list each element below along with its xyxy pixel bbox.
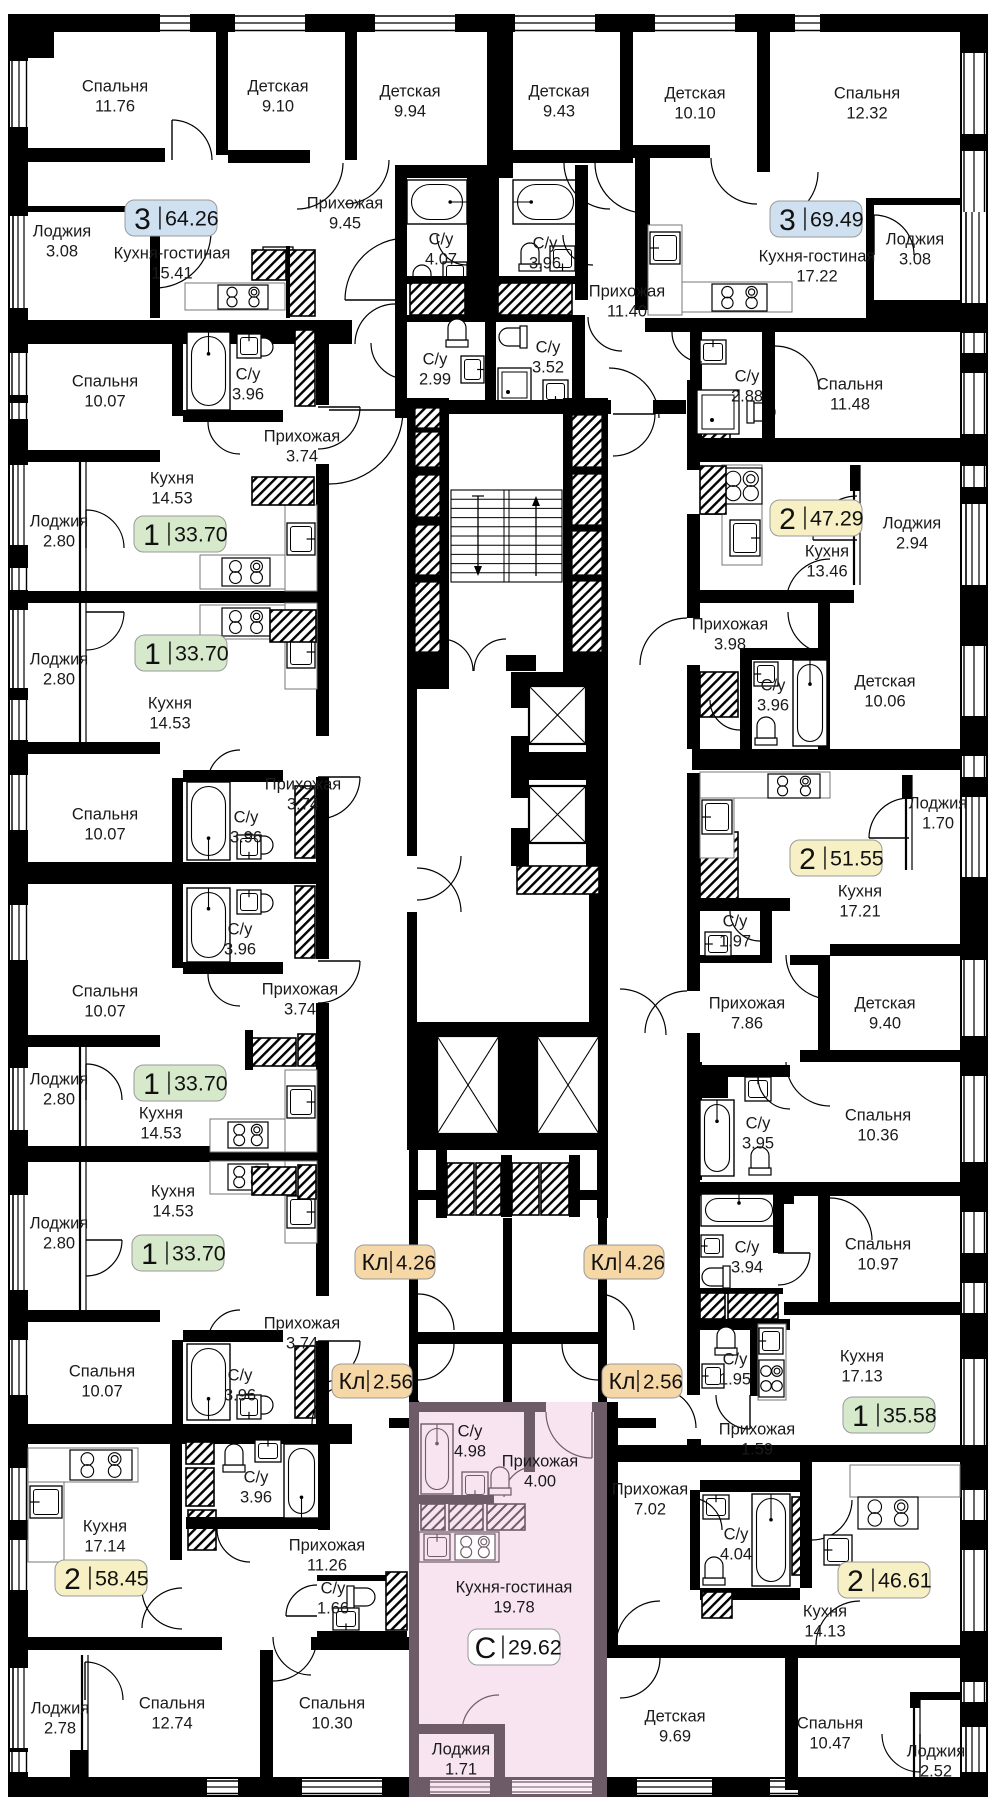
svg-text:Лоджия: Лоджия (30, 1215, 88, 1233)
svg-text:Прихожая: Прихожая (262, 981, 338, 999)
svg-text:33.70: 33.70 (174, 1072, 228, 1096)
svg-text:2.78: 2.78 (44, 1720, 76, 1738)
svg-text:1.59: 1.59 (741, 1441, 773, 1459)
svg-text:58.45: 58.45 (95, 1567, 149, 1591)
svg-text:9.40: 9.40 (869, 1015, 901, 1033)
svg-text:1.70: 1.70 (922, 815, 954, 833)
svg-text:С/у: С/у (423, 351, 449, 369)
svg-text:3: 3 (134, 203, 151, 236)
svg-text:Детская: Детская (528, 83, 589, 101)
svg-text:7.86: 7.86 (731, 1015, 763, 1033)
svg-text:1: 1 (141, 1238, 158, 1271)
svg-text:Прихожая: Прихожая (692, 616, 768, 634)
svg-text:Кухня: Кухня (838, 883, 882, 901)
svg-text:С/у: С/у (228, 1367, 254, 1385)
svg-text:47.29: 47.29 (810, 507, 864, 531)
svg-text:3.74: 3.74 (286, 1335, 318, 1353)
svg-text:10.07: 10.07 (81, 1383, 122, 1401)
svg-text:3: 3 (779, 204, 796, 237)
svg-text:2.80: 2.80 (43, 671, 75, 689)
svg-text:46.61: 46.61 (878, 1569, 932, 1593)
svg-text:11.40: 11.40 (607, 303, 647, 321)
svg-text:Кл: Кл (609, 1368, 636, 1394)
svg-text:11.26: 11.26 (307, 1557, 347, 1575)
svg-text:3.08: 3.08 (46, 243, 78, 261)
svg-text:17.14: 17.14 (84, 1538, 125, 1556)
svg-text:Детская: Детская (379, 83, 440, 101)
svg-text:Прихожая: Прихожая (265, 776, 341, 794)
svg-text:10.07: 10.07 (84, 826, 125, 844)
svg-text:12.32: 12.32 (846, 105, 887, 123)
svg-text:2.80: 2.80 (43, 1235, 75, 1253)
svg-text:Прихожая: Прихожая (264, 428, 340, 446)
svg-text:4.00: 4.00 (524, 1473, 556, 1491)
svg-text:С/у: С/у (244, 1469, 270, 1487)
svg-text:1.66: 1.66 (317, 1600, 349, 1618)
svg-text:4.07: 4.07 (425, 251, 457, 269)
svg-text:Кухня: Кухня (840, 1348, 884, 1366)
svg-text:29.62: 29.62 (508, 1636, 562, 1660)
svg-text:10.07: 10.07 (84, 1003, 125, 1021)
svg-text:3.08: 3.08 (899, 251, 931, 269)
svg-text:17.13: 17.13 (841, 1368, 882, 1386)
svg-text:Кухня: Кухня (805, 543, 849, 561)
svg-text:14.53: 14.53 (151, 490, 192, 508)
svg-text:Прихожая: Прихожая (307, 195, 383, 213)
svg-text:3.98: 3.98 (714, 636, 746, 654)
svg-text:С/у: С/у (723, 913, 749, 931)
svg-text:Спальня: Спальня (72, 373, 138, 391)
svg-text:51.55: 51.55 (830, 847, 884, 871)
svg-text:12.74: 12.74 (151, 1715, 192, 1733)
svg-text:Детская: Детская (664, 85, 725, 103)
svg-text:2.88: 2.88 (731, 388, 763, 406)
svg-text:1: 1 (144, 638, 161, 671)
svg-text:3.96: 3.96 (240, 1489, 272, 1507)
svg-text:Кухня-гостиная: Кухня-гостиная (759, 248, 876, 266)
svg-text:3.94: 3.94 (731, 1259, 763, 1277)
svg-text:3.96: 3.96 (224, 941, 256, 959)
svg-text:2.52: 2.52 (920, 1763, 952, 1781)
svg-text:3.96: 3.96 (757, 697, 789, 715)
svg-text:Прихожая: Прихожая (502, 1453, 578, 1471)
svg-text:Кухня: Кухня (150, 470, 194, 488)
svg-text:14.53: 14.53 (149, 715, 190, 733)
svg-text:Кухня: Кухня (151, 1183, 195, 1201)
svg-text:Кухня-гостиная: Кухня-гостиная (456, 1579, 573, 1597)
svg-text:2: 2 (847, 1565, 864, 1598)
svg-text:9.43: 9.43 (543, 103, 575, 121)
svg-text:Лоджия: Лоджия (30, 513, 88, 531)
svg-text:10.47: 10.47 (809, 1735, 850, 1753)
svg-text:Прихожая: Прихожая (264, 1315, 340, 1333)
svg-text:10.10: 10.10 (674, 105, 715, 123)
svg-text:Кл: Кл (362, 1249, 389, 1275)
svg-text:С/у: С/у (458, 1423, 484, 1441)
svg-text:17.22: 17.22 (796, 268, 837, 286)
svg-text:64.26: 64.26 (165, 207, 219, 231)
svg-text:Спальня: Спальня (797, 1715, 863, 1733)
svg-text:С/у: С/у (536, 339, 562, 357)
svg-text:Детская: Детская (644, 1708, 705, 1726)
svg-text:Кл: Кл (339, 1368, 366, 1394)
svg-text:Лоджия: Лоджия (30, 1071, 88, 1089)
svg-text:33.70: 33.70 (172, 1242, 226, 1266)
svg-text:11.48: 11.48 (830, 396, 870, 414)
svg-text:Спальня: Спальня (69, 1363, 135, 1381)
svg-text:Прихожая: Прихожая (589, 283, 665, 301)
svg-text:С/у: С/у (746, 1115, 772, 1133)
svg-text:4.04: 4.04 (720, 1546, 752, 1564)
svg-text:3.74: 3.74 (286, 448, 318, 466)
svg-text:Спальня: Спальня (845, 1236, 911, 1254)
svg-text:9.45: 9.45 (329, 215, 361, 233)
svg-text:Лоджия: Лоджия (432, 1741, 490, 1759)
svg-text:Спальня: Спальня (72, 806, 138, 824)
svg-text:10.36: 10.36 (857, 1127, 898, 1145)
svg-text:1.97: 1.97 (719, 933, 751, 951)
svg-text:3.96: 3.96 (529, 255, 561, 273)
svg-text:1.71: 1.71 (445, 1761, 477, 1779)
svg-text:10.97: 10.97 (857, 1256, 898, 1274)
svg-text:14.13: 14.13 (804, 1623, 845, 1641)
svg-text:9.69: 9.69 (659, 1728, 691, 1746)
svg-text:10.07: 10.07 (84, 393, 125, 411)
svg-text:С/у: С/у (735, 1239, 761, 1257)
svg-text:13.46: 13.46 (806, 563, 847, 581)
svg-text:Кухня: Кухня (148, 695, 192, 713)
svg-text:Лоджия: Лоджия (31, 1700, 89, 1718)
svg-text:Лоджия: Лоджия (883, 515, 941, 533)
svg-text:Прихожая: Прихожая (709, 995, 785, 1013)
svg-text:17.21: 17.21 (839, 903, 880, 921)
svg-text:2.80: 2.80 (43, 1091, 75, 1109)
svg-text:3.96: 3.96 (230, 829, 262, 847)
svg-text:Лоджия: Лоджия (907, 1743, 965, 1761)
svg-text:2: 2 (799, 843, 816, 876)
svg-text:Спальня: Спальня (845, 1107, 911, 1125)
svg-text:3.96: 3.96 (224, 1387, 256, 1405)
svg-text:Спальня: Спальня (139, 1695, 205, 1713)
svg-text:7.02: 7.02 (634, 1501, 666, 1519)
svg-text:2.80: 2.80 (43, 533, 75, 551)
svg-text:4.26: 4.26 (396, 1252, 436, 1275)
svg-text:3.52: 3.52 (532, 359, 564, 377)
svg-text:С/у: С/у (761, 677, 787, 695)
svg-text:15.41: 15.41 (151, 265, 192, 283)
svg-text:1: 1 (852, 1400, 869, 1433)
svg-text:2.94: 2.94 (896, 535, 928, 553)
svg-text:Лоджия: Лоджия (30, 651, 88, 669)
svg-text:1: 1 (143, 1068, 160, 1101)
svg-text:2.56: 2.56 (373, 1371, 413, 1394)
svg-text:Спальня: Спальня (72, 983, 138, 1001)
svg-text:69.49: 69.49 (810, 208, 864, 232)
svg-text:3.95: 3.95 (742, 1135, 774, 1153)
svg-text:1: 1 (143, 519, 160, 552)
svg-text:Кухня: Кухня (139, 1105, 183, 1123)
svg-text:Кл: Кл (591, 1249, 618, 1275)
svg-text:4.98: 4.98 (454, 1443, 486, 1461)
svg-text:33.70: 33.70 (174, 523, 228, 547)
svg-text:С/у: С/у (735, 368, 761, 386)
svg-text:Детская: Детская (854, 673, 915, 691)
svg-text:Кухня: Кухня (83, 1518, 127, 1536)
svg-text:Спальня: Спальня (817, 376, 883, 394)
svg-text:Спальня: Спальня (82, 78, 148, 96)
svg-text:Прихожая: Прихожая (719, 1421, 795, 1439)
svg-text:Прихожая: Прихожая (612, 1481, 688, 1499)
svg-text:2.99: 2.99 (419, 371, 451, 389)
svg-text:Лоджия: Лоджия (909, 795, 967, 813)
svg-text:3.74: 3.74 (284, 1001, 316, 1019)
svg-text:2: 2 (779, 503, 796, 536)
svg-text:Лоджия: Лоджия (33, 223, 91, 241)
svg-text:С/у: С/у (533, 235, 559, 253)
svg-text:35.58: 35.58 (883, 1404, 937, 1428)
svg-text:С/у: С/у (228, 921, 254, 939)
svg-text:19.78: 19.78 (493, 1599, 534, 1617)
svg-text:14.53: 14.53 (152, 1203, 193, 1221)
svg-text:Кухня: Кухня (803, 1603, 847, 1621)
svg-text:10.30: 10.30 (311, 1715, 352, 1733)
svg-text:С: С (475, 1632, 497, 1665)
svg-text:С/у: С/у (723, 1351, 749, 1369)
svg-text:Кухня-гостиная: Кухня-гостиная (114, 245, 231, 263)
svg-text:33.70: 33.70 (175, 642, 229, 666)
svg-text:4.26: 4.26 (625, 1252, 665, 1275)
svg-text:Детская: Детская (854, 995, 915, 1013)
svg-text:3.96: 3.96 (232, 386, 264, 404)
svg-text:2.56: 2.56 (643, 1371, 683, 1394)
svg-text:Лоджия: Лоджия (886, 231, 944, 249)
svg-text:С/у: С/у (724, 1526, 750, 1544)
svg-text:Детская: Детская (247, 78, 308, 96)
svg-text:С/у: С/у (236, 366, 262, 384)
svg-text:Спальня: Спальня (834, 85, 900, 103)
svg-text:10.06: 10.06 (864, 693, 905, 711)
svg-text:Прихожая: Прихожая (289, 1537, 365, 1555)
svg-text:С/у: С/у (234, 809, 260, 827)
svg-text:14.53: 14.53 (140, 1125, 181, 1143)
svg-text:Спальня: Спальня (299, 1695, 365, 1713)
svg-text:С/у: С/у (429, 231, 455, 249)
svg-text:3.74: 3.74 (287, 796, 319, 814)
svg-text:9.10: 9.10 (262, 98, 294, 116)
svg-text:1.95: 1.95 (719, 1371, 751, 1389)
svg-text:11.76: 11.76 (95, 98, 135, 116)
svg-text:9.94: 9.94 (394, 103, 426, 121)
svg-text:2: 2 (64, 1563, 81, 1596)
svg-text:С/у: С/у (321, 1580, 347, 1598)
